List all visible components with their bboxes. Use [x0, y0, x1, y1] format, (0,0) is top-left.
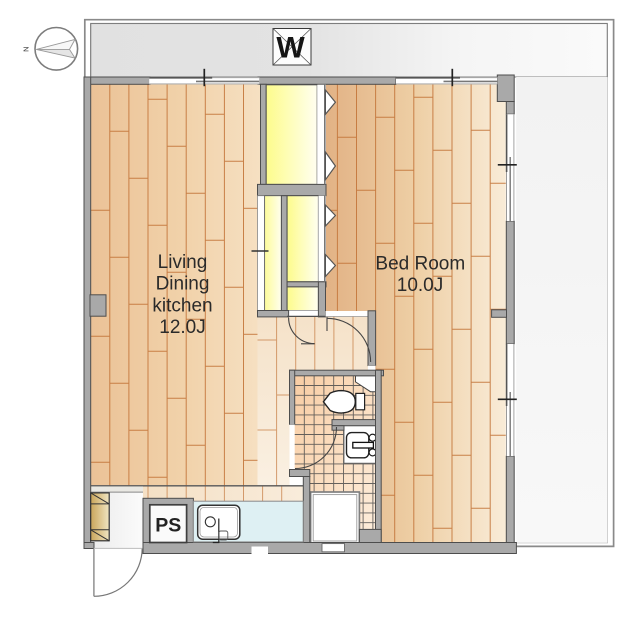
svg-text:12.0J: 12.0J — [159, 317, 205, 338]
svg-text:PS: PS — [155, 515, 181, 537]
svg-text:10.0J: 10.0J — [397, 275, 443, 296]
svg-text:kitchen: kitchen — [152, 295, 212, 316]
svg-text:Dining: Dining — [156, 274, 210, 295]
svg-text:W: W — [276, 32, 305, 65]
svg-text:N: N — [22, 46, 31, 51]
svg-text:Bed Room: Bed Room — [375, 253, 465, 274]
svg-text:Living: Living — [158, 252, 208, 273]
